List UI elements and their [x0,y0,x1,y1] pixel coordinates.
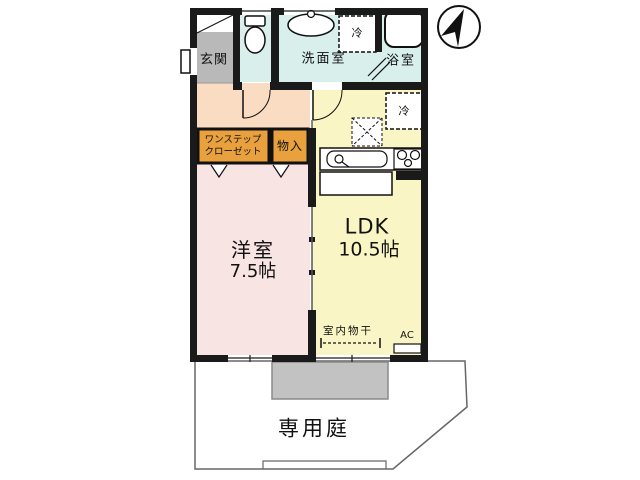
floor-plan: 玄関 洗面室 浴室 冷 冷 ワンステップ クローゼット 物入 洋室 7.5帖 L… [0,0,640,480]
storage-label: 物入 [277,140,303,152]
genkan-label: 玄関 [200,54,228,67]
kitchen-faucet-icon [335,155,343,163]
closet-label-line1: ワンステップ [205,135,262,145]
floor-plan-drawing [0,0,640,480]
washroom-label: 洗面室 [301,53,346,66]
western-room-label: 洋室 [231,240,275,260]
closet-label-line2: クローゼット [204,147,261,157]
counter-front [320,172,392,195]
entrance-door [181,50,190,73]
ldk-label: LDK [345,217,390,238]
bathroom-label: 浴室 [386,55,416,68]
bathroom-door-gap [375,52,382,82]
hatch-box-icon [352,118,382,146]
western-room-size-label: 7.5帖 [230,263,277,281]
ldk-size-label: 10.5帖 [338,241,399,260]
ac-unit-box [394,344,421,353]
private-garden-label: 専用庭 [278,419,350,440]
bathtub-icon [385,11,423,47]
indoor-drying-label: 室内物干 [323,326,373,337]
toilet-tank-icon [245,16,265,26]
toilet-icon [245,27,265,53]
laundry-box-label: 冷 [352,28,363,39]
ac-label: AC [400,331,414,341]
stove-icon [394,149,424,169]
north-arrow-icon [438,6,480,48]
fridge-box-label: 冷 [399,106,410,117]
terrace [272,362,388,399]
kitchen-wall-stub [396,171,425,180]
